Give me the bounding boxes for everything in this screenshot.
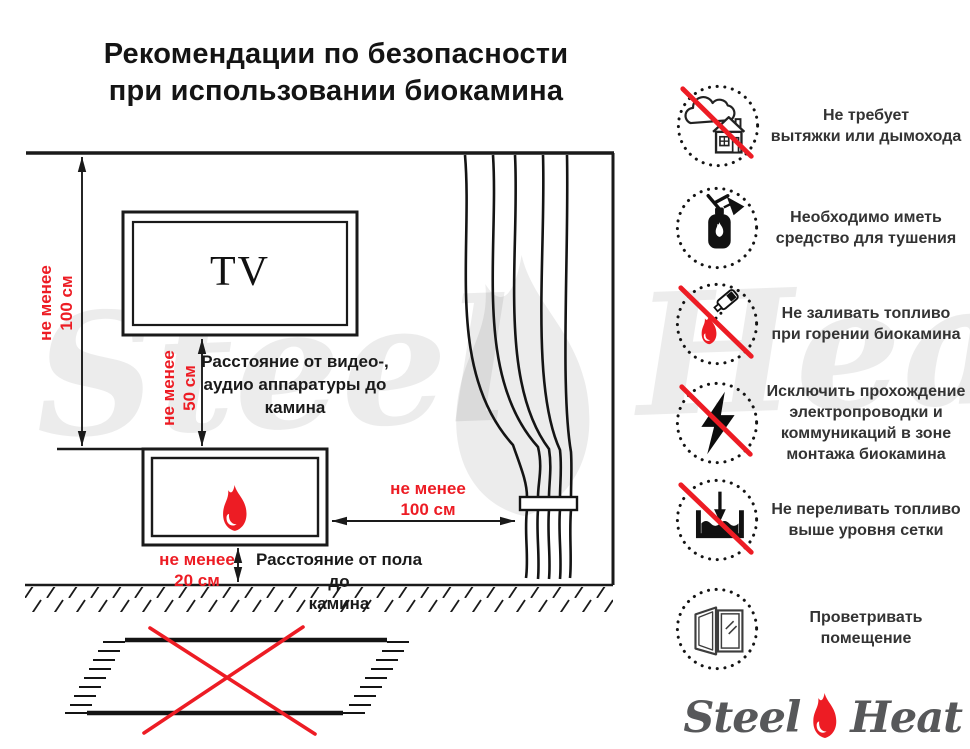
floor-distance-label: не менее 20 см bbox=[147, 549, 247, 591]
tv-caption: Расстояние от видео-, аудио аппаратуры д… bbox=[195, 350, 395, 419]
carpet bbox=[65, 640, 409, 713]
biofireplace-safety-infographic: Steel Heat Рекомендации по безопасности … bbox=[0, 0, 970, 749]
ventilate-icon bbox=[673, 585, 761, 673]
no-refuel-burning-icon bbox=[673, 280, 761, 368]
title-line-1: Рекомендации по безопасности bbox=[28, 36, 644, 73]
logo-steel-text: Steel bbox=[683, 693, 800, 743]
no-chimney-icon bbox=[674, 82, 762, 170]
rule-caption-ventilate: Проветривать помещение bbox=[764, 607, 968, 649]
curtain-distance-label: не менее 100 см bbox=[378, 478, 478, 520]
page-title: Рекомендации по безопасности при использ… bbox=[28, 36, 644, 110]
title-line-2: при использовании биокамина bbox=[28, 73, 644, 110]
fire-extinguisher-icon bbox=[673, 184, 761, 272]
wall-distance-label: не менее 100 см bbox=[35, 238, 79, 368]
rule-caption-extinguisher: Необходимо иметь средство для тушения bbox=[764, 207, 968, 249]
rule-caption-no-chimney: Не требует вытяжки или дымохода bbox=[764, 105, 968, 147]
logo-heat-text: Heat bbox=[850, 693, 962, 743]
no-overfill-icon bbox=[673, 476, 761, 564]
curtain-tie-band bbox=[520, 497, 577, 510]
rule-caption-no-wiring: Исключить прохождение электропроводки и … bbox=[764, 381, 968, 465]
curtain bbox=[465, 155, 577, 579]
floor-caption: Расстояние от пола до камина bbox=[246, 549, 432, 615]
logo-flame-icon bbox=[807, 693, 843, 743]
carpet-prohibition-cross bbox=[144, 627, 315, 734]
steelheat-logo: Steel Heat bbox=[683, 693, 962, 743]
rule-caption-no-overfill: Не переливать топливо выше уровня сетки bbox=[764, 499, 968, 541]
no-wiring-icon bbox=[673, 379, 761, 467]
rule-caption-no-refuel: Не заливать топливо при горении биокамин… bbox=[764, 303, 968, 345]
tv-label: TV bbox=[170, 248, 310, 296]
